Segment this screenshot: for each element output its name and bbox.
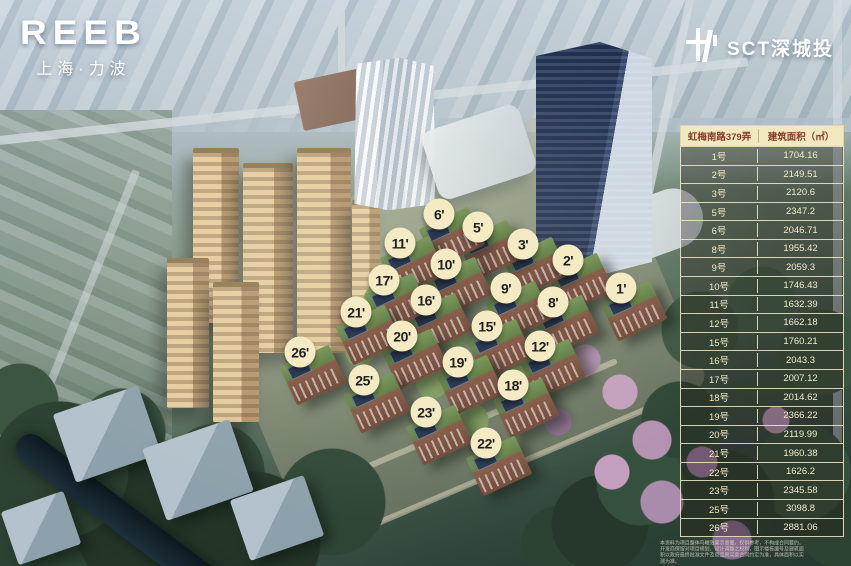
table-header: 虹梅南路379弄 建筑面积（㎡）: [680, 125, 844, 147]
table-row: 25号3098.8: [681, 500, 843, 519]
building-no-cell: 21号: [681, 446, 758, 460]
brand-logo-text: REEB: [20, 14, 147, 53]
building-area-cell: 2046.71: [758, 225, 843, 236]
building-marker: 21': [341, 297, 372, 328]
table-row: 12号1662.18: [681, 314, 843, 333]
building-area-cell: 2120.6: [758, 187, 843, 198]
building-area-cell: 1760.21: [758, 336, 843, 347]
building-no-cell: 11号: [681, 297, 758, 311]
building-marker: 2': [553, 245, 584, 276]
city-glyph-icon: [684, 26, 718, 69]
building-area-cell: 1632.39: [758, 299, 843, 310]
table-header-area: 建筑面积（㎡）: [759, 129, 843, 143]
building-no-cell: 6号: [681, 223, 758, 237]
building-no-cell: 20号: [681, 427, 758, 441]
table-row: 15号1760.21: [681, 333, 843, 352]
building-marker: 26': [285, 337, 316, 368]
developer-logo-text: SCT深城投: [727, 34, 834, 61]
building-marker: 25': [349, 365, 380, 396]
building-no-cell: 16号: [681, 353, 758, 367]
table-row: 17号2007.12: [681, 370, 843, 389]
building-marker: 12': [525, 331, 556, 362]
building-no-cell: 12号: [681, 316, 758, 330]
developer-logo: SCT深城投: [684, 26, 834, 69]
building-marker: 16': [411, 285, 442, 316]
aerial-site-map: 1'2'3'5'6'8'9'10'11'12'15'16'17'18'19'20…: [0, 0, 851, 566]
table-row: 16号2043.3: [681, 351, 843, 370]
building-marker: 9': [491, 273, 522, 304]
table-row: 10号1746.43: [681, 277, 843, 296]
building-no-cell: 22号: [681, 465, 758, 479]
building-area-cell: 1662.18: [758, 317, 843, 328]
building-area-cell: 1960.38: [758, 448, 843, 459]
building-area-table: 虹梅南路379弄 建筑面积（㎡） 1号1704.162号2149.513号212…: [680, 125, 844, 537]
table-row: 18号2014.62: [681, 389, 843, 408]
table-header-address: 虹梅南路379弄: [681, 129, 759, 143]
building-area-cell: 2007.12: [758, 373, 843, 384]
building-marker: 22': [471, 428, 502, 459]
building-marker: 20': [387, 321, 418, 352]
building-area-cell: 2345.58: [758, 485, 843, 496]
building-no-cell: 18号: [681, 390, 758, 404]
building-area-cell: 2043.3: [758, 355, 843, 366]
building-area-cell: 1746.43: [758, 280, 843, 291]
building-marker: 10': [431, 249, 462, 280]
building-area-cell: 2347.2: [758, 206, 843, 217]
building-area-cell: 2366.22: [758, 410, 843, 421]
table-row: 19号2366.22: [681, 407, 843, 426]
building-no-cell: 26号: [681, 520, 758, 534]
table-row: 6号2046.71: [681, 221, 843, 240]
building-marker: 19': [443, 347, 474, 378]
table-row: 5号2347.2: [681, 203, 843, 222]
table-row: 21号1960.38: [681, 444, 843, 463]
building-no-cell: 8号: [681, 242, 758, 256]
building-no-cell: 2号: [681, 167, 758, 181]
building-no-cell: 17号: [681, 372, 758, 386]
building-area-cell: 1955.42: [758, 243, 843, 254]
table-row: 2号2149.51: [681, 166, 843, 185]
building-no-cell: 1号: [681, 149, 758, 163]
table-row: 23号2345.58: [681, 481, 843, 500]
table-row: 3号2120.6: [681, 184, 843, 203]
building-no-cell: 10号: [681, 279, 758, 293]
building-marker: 5': [463, 212, 494, 243]
building-no-cell: 15号: [681, 335, 758, 349]
area-table-body: 1号1704.162号2149.513号2120.65号2347.26号2046…: [680, 147, 844, 537]
building-area-cell: 2149.51: [758, 169, 843, 180]
building-marker: 23': [411, 397, 442, 428]
building-no-cell: 3号: [681, 186, 758, 200]
building-marker: 17': [369, 265, 400, 296]
building-marker: 1': [606, 273, 637, 304]
building-area-cell: 1704.16: [758, 150, 843, 161]
building-marker: 3': [508, 229, 539, 260]
table-row: 8号1955.42: [681, 240, 843, 259]
table-row: 9号2059.3: [681, 258, 843, 277]
building-no-cell: 19号: [681, 409, 758, 423]
building-marker: 8': [538, 287, 569, 318]
table-row: 22号1626.2: [681, 463, 843, 482]
disclaimer-text: 本资料为项目整体鸟瞰效果示意图，仅供参考，不构成合同要约。开发商保留对项目规划、…: [660, 540, 806, 565]
building-marker: 6': [424, 199, 455, 230]
building-marker: 15': [472, 311, 503, 342]
building-area-cell: 2119.99: [758, 429, 843, 440]
table-row: 20号2119.99: [681, 426, 843, 445]
building-area-cell: 2014.62: [758, 392, 843, 403]
brand-logo: REEB 上海·力波: [20, 12, 147, 79]
building-marker: 18': [498, 370, 529, 401]
building-marker: 11': [385, 228, 416, 259]
table-row: 1号1704.16: [681, 147, 843, 166]
building-area-cell: 1626.2: [758, 466, 843, 477]
table-row: 11号1632.39: [681, 296, 843, 315]
table-row: 26号2881.06: [681, 519, 843, 538]
building-no-cell: 25号: [681, 502, 758, 516]
building-no-cell: 9号: [681, 260, 758, 274]
building-area-cell: 2881.06: [758, 522, 843, 533]
building-no-cell: 5号: [681, 205, 758, 219]
building-no-cell: 23号: [681, 483, 758, 497]
building-area-cell: 2059.3: [758, 262, 843, 273]
building-area-cell: 3098.8: [758, 503, 843, 514]
brand-logo-subtitle: 上海·力波: [20, 55, 147, 79]
